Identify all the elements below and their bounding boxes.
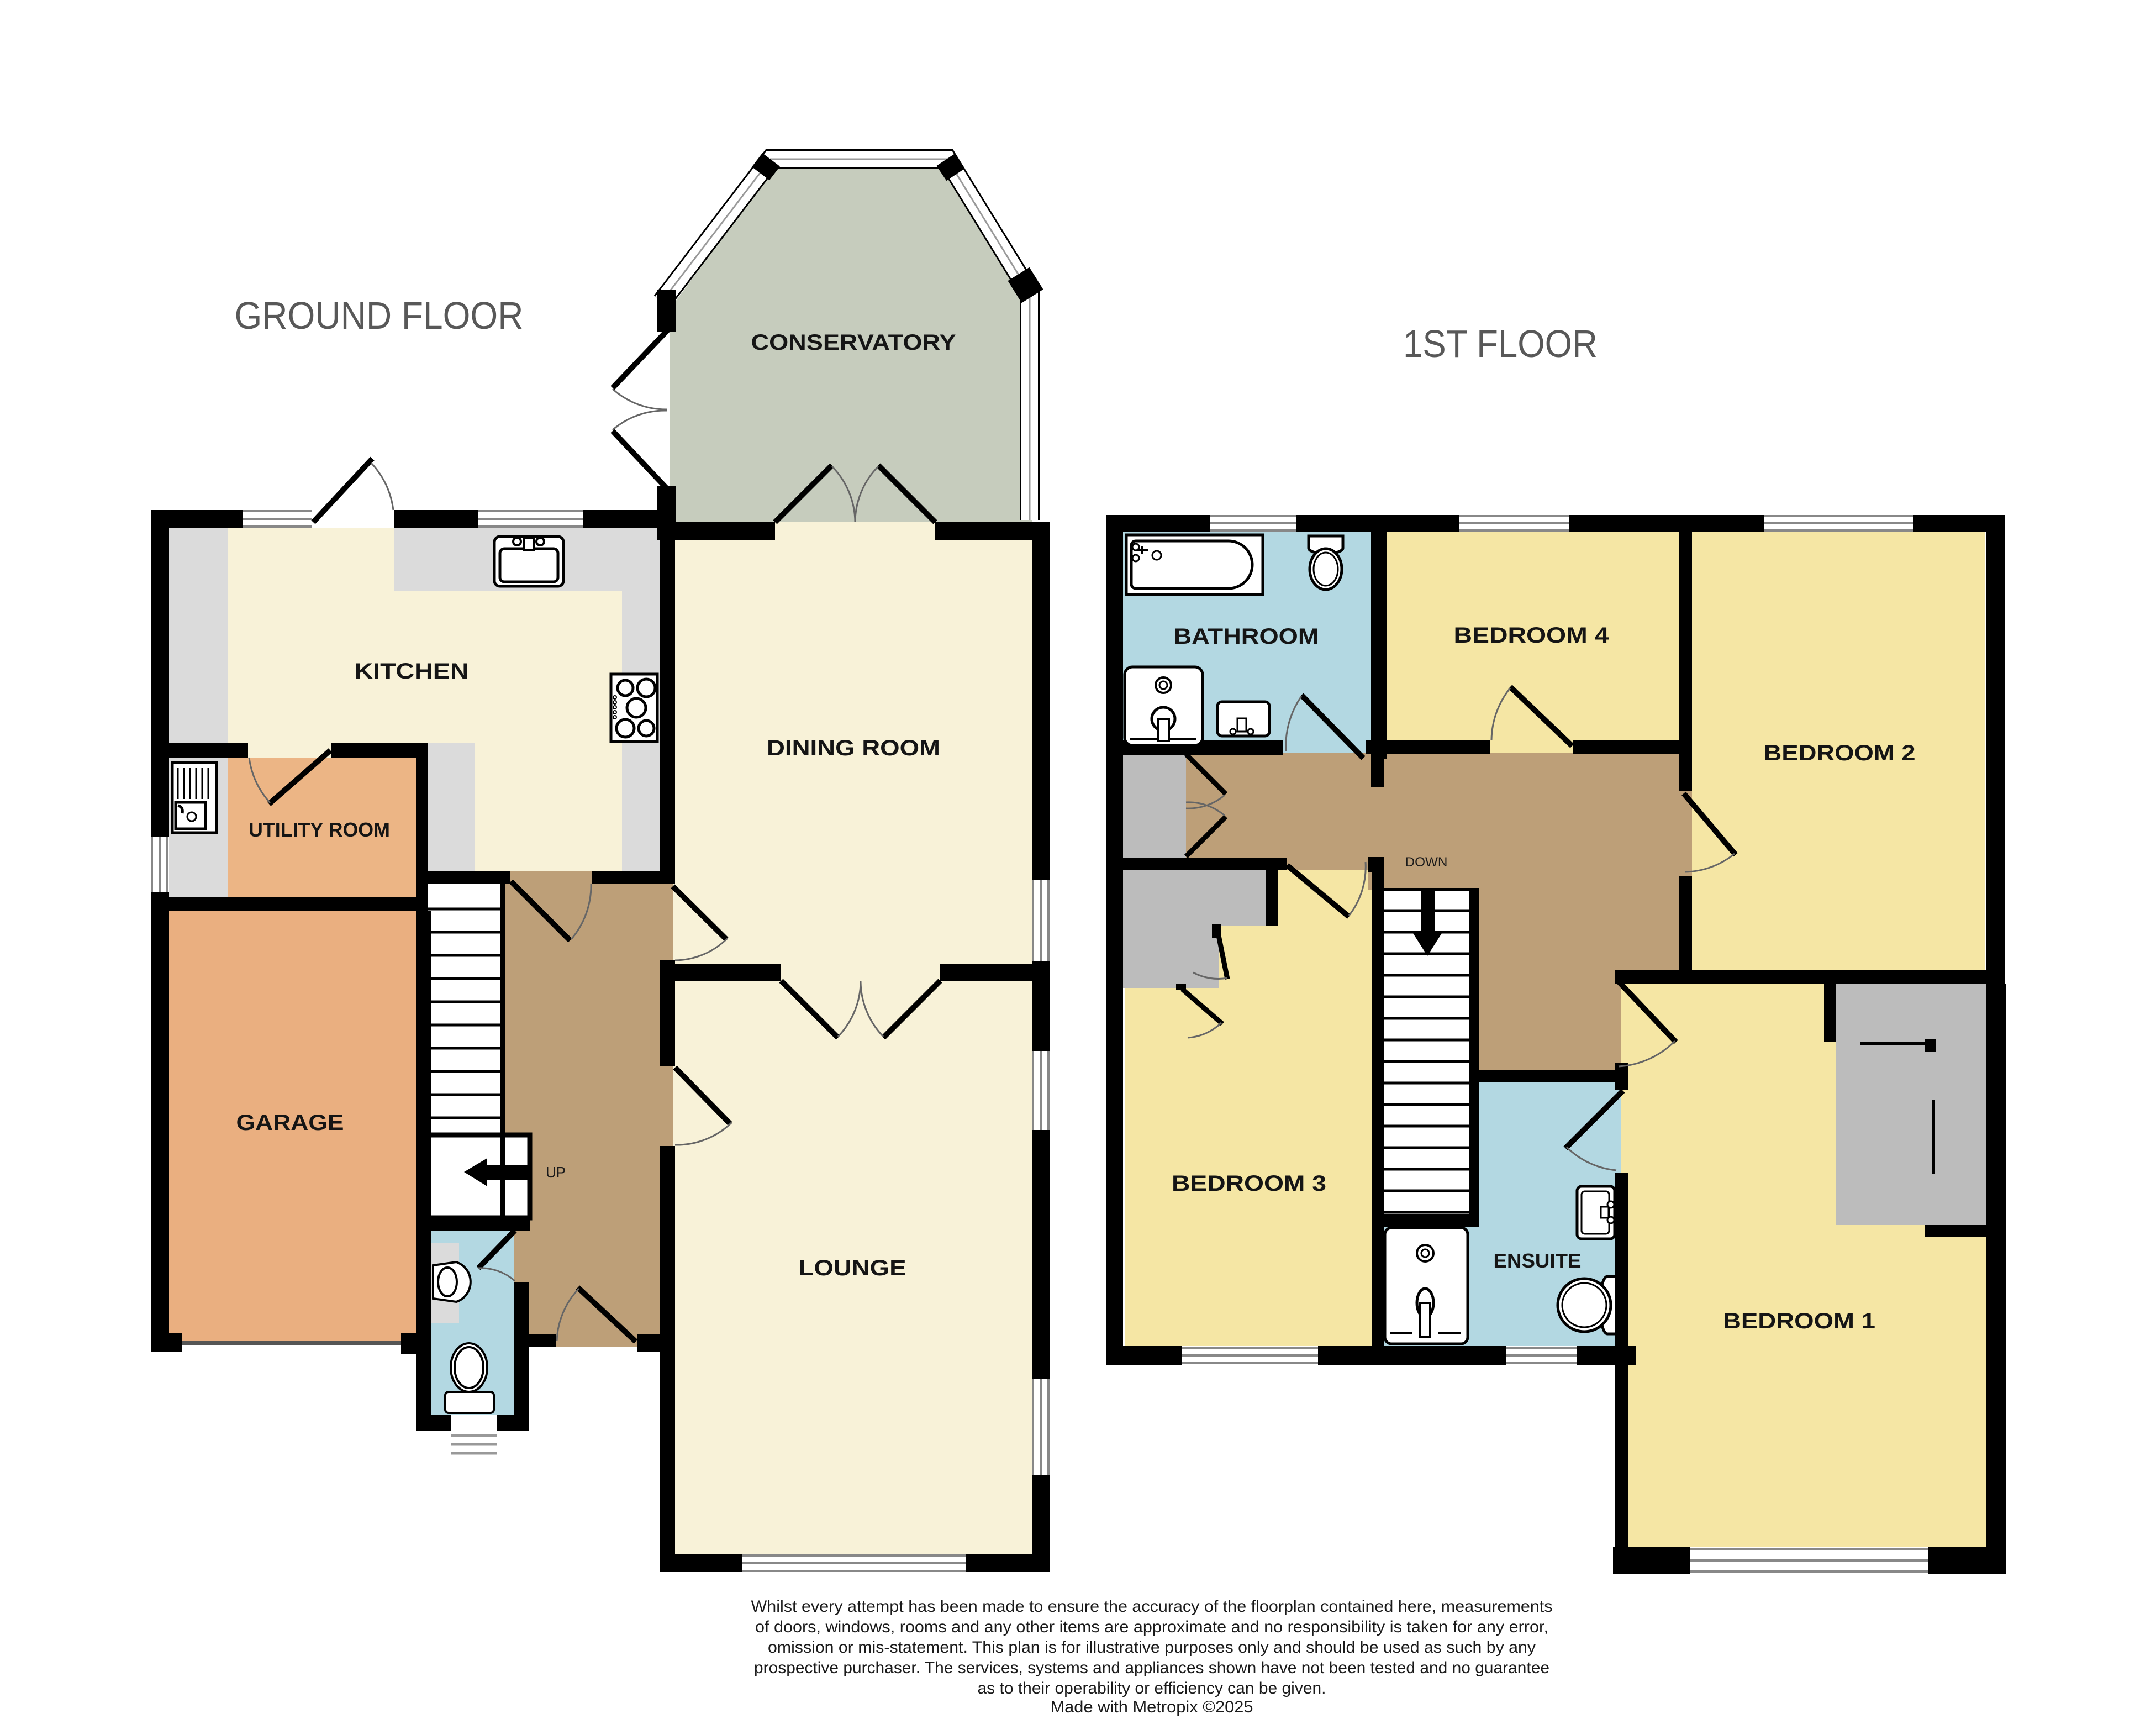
svg-text:GROUND FLOOR: GROUND FLOOR bbox=[235, 294, 524, 337]
svg-text:Whilst every attempt has been: Whilst every attempt has been made to en… bbox=[751, 1597, 1553, 1616]
svg-text:UTILITY ROOM: UTILITY ROOM bbox=[249, 818, 390, 841]
svg-text:GARAGE: GARAGE bbox=[236, 1111, 344, 1135]
svg-text:UP: UP bbox=[546, 1164, 566, 1181]
svg-text:BATHROOM: BATHROOM bbox=[1174, 624, 1319, 649]
svg-text:Made with Metropix ©2025: Made with Metropix ©2025 bbox=[1051, 1698, 1253, 1716]
svg-text:omission or mis-statement. Thi: omission or mis-statement. This plan is … bbox=[768, 1638, 1536, 1657]
svg-text:BEDROOM 3: BEDROOM 3 bbox=[1172, 1171, 1326, 1196]
svg-text:of doors, windows, rooms and a: of doors, windows, rooms and any other i… bbox=[755, 1618, 1548, 1636]
svg-text:as to their operability or eff: as to their operability or efficiency ca… bbox=[978, 1679, 1326, 1697]
svg-text:BEDROOM 4: BEDROOM 4 bbox=[1454, 623, 1610, 648]
svg-text:ENSUITE: ENSUITE bbox=[1494, 1249, 1582, 1272]
svg-text:prospective purchaser. The ser: prospective purchaser. The services, sys… bbox=[754, 1659, 1549, 1677]
svg-text:LOUNGE: LOUNGE bbox=[799, 1256, 906, 1280]
svg-text:KITCHEN: KITCHEN bbox=[355, 659, 469, 684]
svg-text:BEDROOM 1: BEDROOM 1 bbox=[1723, 1309, 1875, 1333]
svg-text:BEDROOM 2: BEDROOM 2 bbox=[1764, 741, 1916, 765]
svg-text:DINING ROOM: DINING ROOM bbox=[767, 736, 940, 760]
svg-text:1ST FLOOR: 1ST FLOOR bbox=[1403, 322, 1598, 365]
svg-text:CONSERVATORY: CONSERVATORY bbox=[751, 330, 956, 355]
svg-text:DOWN: DOWN bbox=[1405, 855, 1448, 870]
